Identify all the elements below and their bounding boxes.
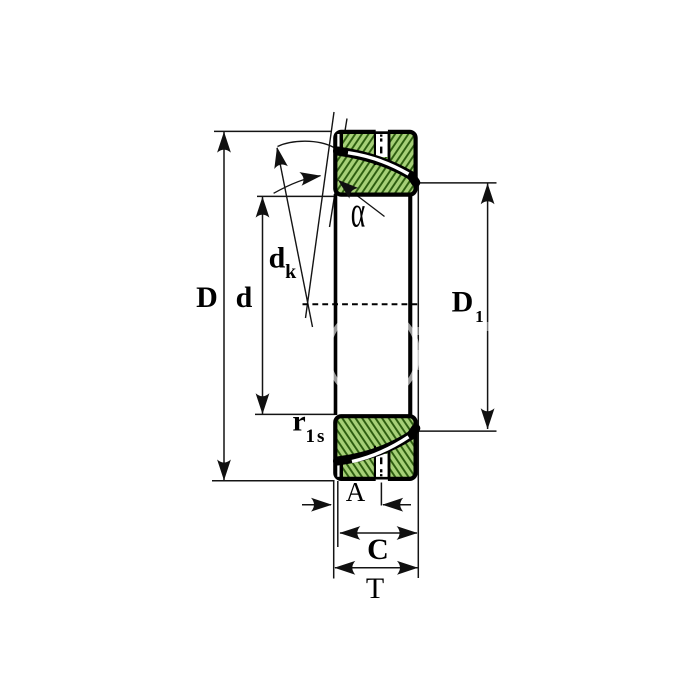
svg-text:T: T <box>366 572 384 605</box>
svg-text:k: k <box>285 261 297 283</box>
svg-text:1s: 1s <box>306 426 327 447</box>
svg-text:C: C <box>367 533 389 566</box>
svg-text:d: d <box>269 242 286 275</box>
svg-text:r: r <box>292 405 305 438</box>
svg-text:1: 1 <box>475 307 484 326</box>
svg-text:α: α <box>351 187 366 236</box>
svg-text:d: d <box>236 281 253 314</box>
svg-text:D: D <box>196 281 218 314</box>
svg-text:D: D <box>452 285 474 318</box>
svg-text:A: A <box>346 477 366 507</box>
